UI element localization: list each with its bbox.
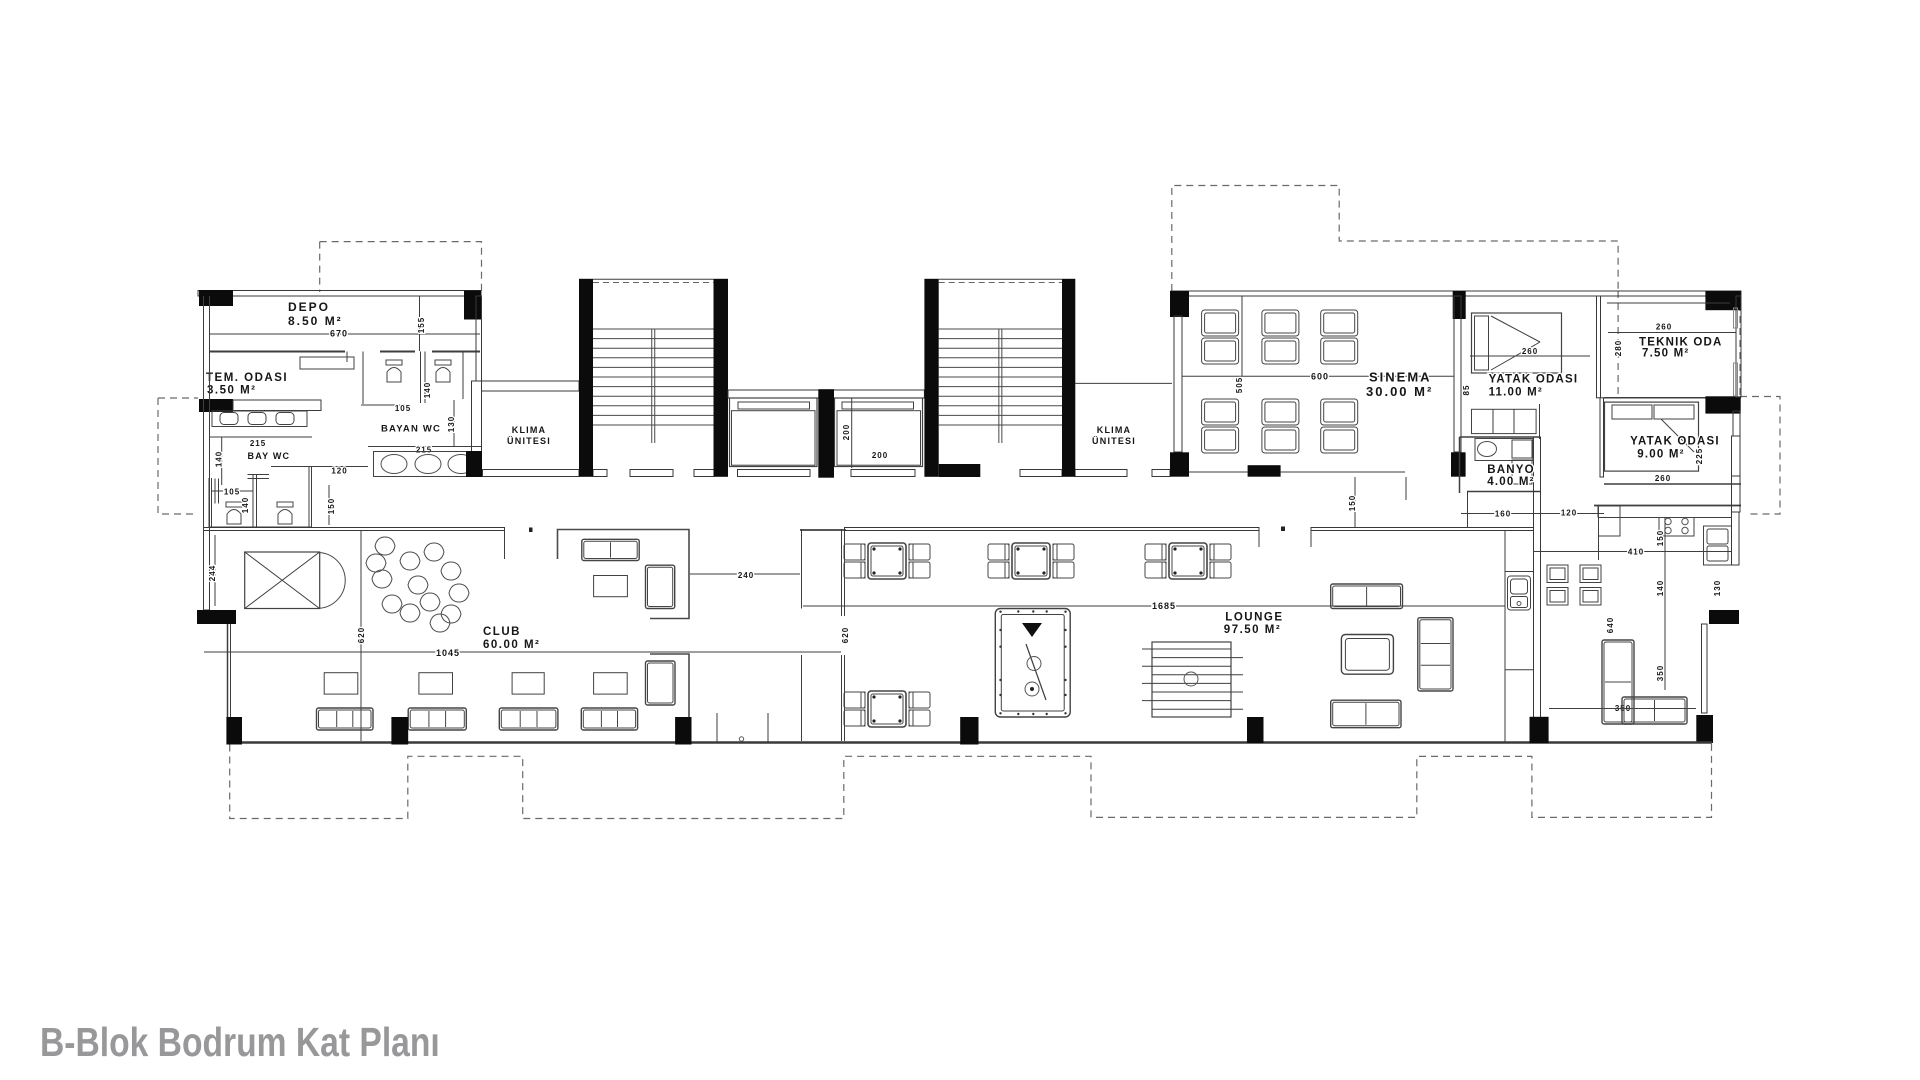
svg-text:SINEMA: SINEMA: [1369, 370, 1432, 385]
svg-text:140: 140: [241, 497, 250, 513]
svg-text:620: 620: [357, 627, 366, 643]
svg-text:410: 410: [1628, 548, 1644, 557]
svg-text:85: 85: [1462, 385, 1471, 396]
svg-text:TEM. ODASI: TEM. ODASI: [206, 372, 288, 384]
svg-text:150: 150: [327, 498, 336, 514]
svg-text:ÜNITESI: ÜNITESI: [1092, 436, 1136, 446]
svg-text:KLIMA: KLIMA: [1097, 425, 1132, 435]
svg-text:130: 130: [447, 416, 456, 432]
svg-text:280: 280: [1614, 340, 1623, 356]
svg-text:DEPO: DEPO: [288, 300, 330, 314]
svg-text:130: 130: [1713, 580, 1722, 596]
svg-text:YATAK ODASI: YATAK ODASI: [1630, 436, 1720, 448]
svg-text:BAY WC: BAY WC: [248, 451, 291, 461]
svg-text:105: 105: [224, 488, 240, 497]
svg-text:155: 155: [417, 317, 426, 333]
svg-text:1685: 1685: [1152, 601, 1176, 611]
svg-text:215: 215: [416, 446, 432, 455]
svg-text:9.00 M²: 9.00 M²: [1637, 449, 1684, 461]
svg-text:LOUNGE: LOUNGE: [1225, 612, 1283, 624]
svg-text:150: 150: [1348, 495, 1357, 511]
svg-text:140: 140: [1656, 580, 1665, 596]
svg-text:3.50 M²: 3.50 M²: [207, 385, 257, 397]
svg-text:120: 120: [331, 467, 347, 476]
svg-text:640: 640: [1606, 617, 1615, 633]
svg-text:97.50 M²: 97.50 M²: [1224, 624, 1281, 636]
svg-text:30.00 M²: 30.00 M²: [1366, 384, 1433, 399]
svg-text:1045: 1045: [436, 648, 460, 658]
svg-text:160: 160: [1495, 510, 1511, 519]
svg-text:140: 140: [423, 382, 432, 398]
svg-text:260: 260: [1655, 474, 1671, 483]
svg-text:BAYAN WC: BAYAN WC: [381, 424, 441, 435]
svg-text:215: 215: [250, 439, 266, 448]
svg-text:7.50 M²: 7.50 M²: [1642, 348, 1689, 360]
svg-text:KLIMA: KLIMA: [512, 425, 547, 435]
svg-text:350: 350: [1656, 665, 1665, 681]
svg-text:60.00 M²: 60.00 M²: [483, 639, 540, 651]
svg-text:105: 105: [395, 404, 411, 413]
svg-text:BANYO: BANYO: [1487, 464, 1535, 476]
svg-text:260: 260: [1522, 347, 1538, 356]
svg-text:200: 200: [842, 424, 851, 440]
svg-text:200: 200: [872, 451, 888, 460]
svg-text:670: 670: [330, 329, 348, 339]
svg-text:ÜNITESI: ÜNITESI: [507, 436, 551, 446]
svg-text:140: 140: [215, 451, 224, 467]
svg-text:11.00 M²: 11.00 M²: [1489, 387, 1543, 399]
svg-text:4.00 M²: 4.00 M²: [1487, 476, 1534, 488]
svg-text:240: 240: [738, 571, 754, 580]
svg-text:244: 244: [208, 565, 217, 581]
svg-text:600: 600: [1311, 372, 1329, 382]
svg-text:YATAK ODASI: YATAK ODASI: [1489, 374, 1579, 386]
svg-text:620: 620: [841, 627, 850, 643]
svg-text:8.50 M²: 8.50 M²: [288, 314, 343, 328]
svg-text:260: 260: [1656, 323, 1672, 332]
svg-text:150: 150: [1656, 530, 1665, 546]
svg-text:505: 505: [1235, 377, 1244, 393]
svg-text:225: 225: [1695, 448, 1704, 464]
svg-text:CLUB: CLUB: [483, 626, 521, 638]
svg-text:120: 120: [1561, 509, 1577, 518]
